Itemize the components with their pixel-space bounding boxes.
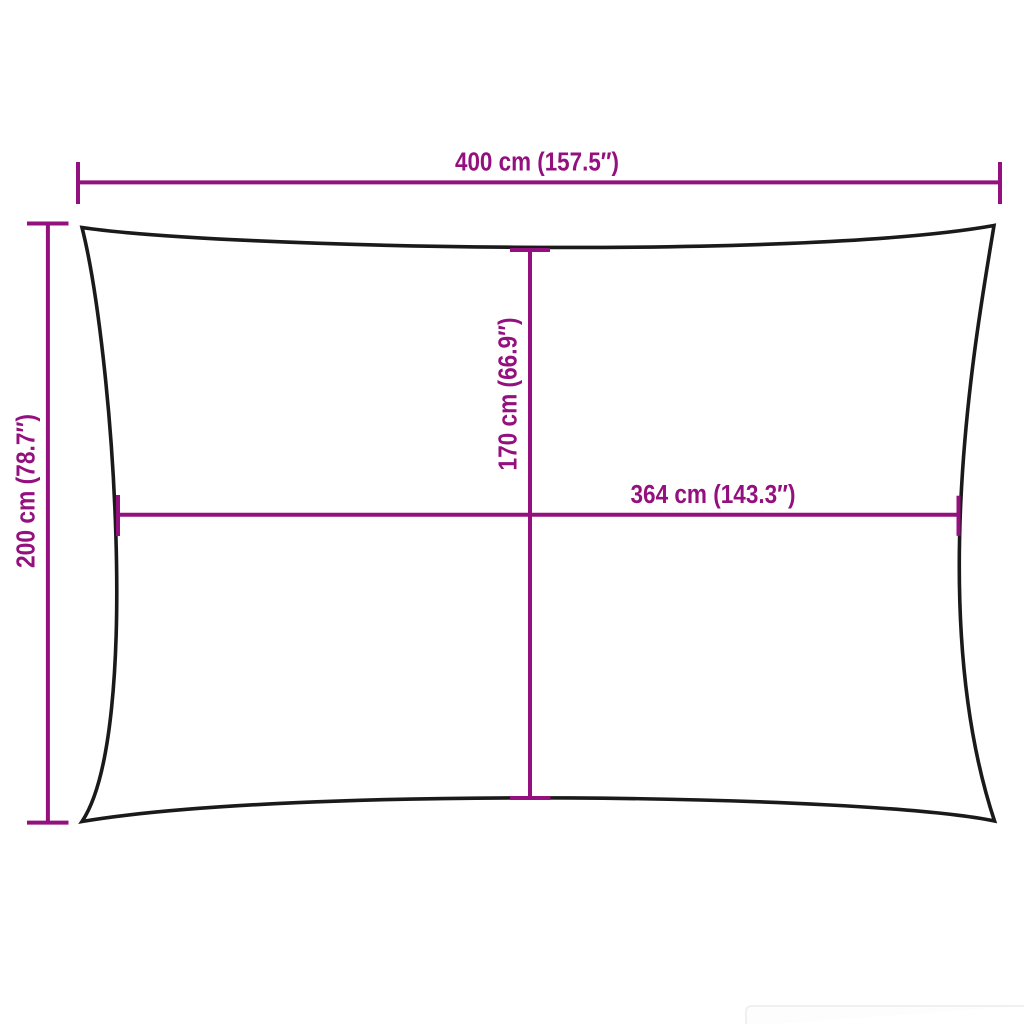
svg-text:400 cm (157.5″): 400 cm (157.5″) [455,149,619,177]
svg-text:170 cm (66.9″): 170 cm (66.9″) [494,318,522,471]
svg-text:200 cm (78.7″): 200 cm (78.7″) [13,414,41,568]
svg-text:364 cm (143.3″): 364 cm (143.3″) [631,481,796,509]
